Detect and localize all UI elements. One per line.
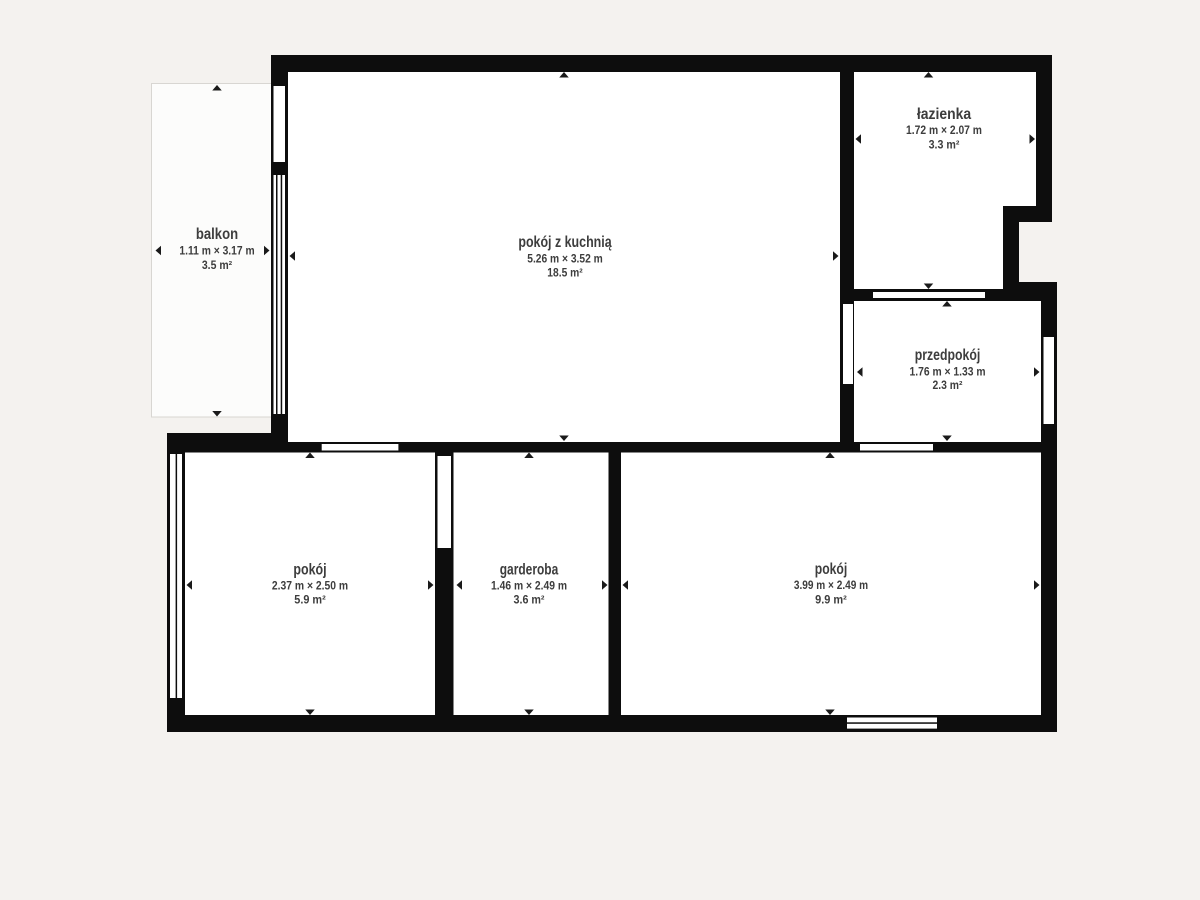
svg-text:18.5 m²: 18.5 m²: [547, 267, 583, 279]
svg-text:2.37 m × 2.50 m: 2.37 m × 2.50 m: [272, 580, 348, 592]
svg-text:9.9 m²: 9.9 m²: [815, 594, 847, 606]
svg-text:1.76 m × 1.33 m: 1.76 m × 1.33 m: [910, 366, 986, 378]
svg-text:5.9 m²: 5.9 m²: [294, 595, 326, 607]
svg-text:garderoba: garderoba: [500, 561, 559, 578]
svg-text:5.26 m × 3.52 m: 5.26 m × 3.52 m: [527, 253, 603, 265]
svg-text:pokój z kuchnią: pokój z kuchnią: [518, 234, 612, 251]
svg-text:3.5 m²: 3.5 m²: [202, 260, 232, 272]
svg-text:pokój: pokój: [293, 561, 326, 578]
svg-text:3.99 m × 2.49 m: 3.99 m × 2.49 m: [794, 580, 868, 592]
svg-text:2.3 m²: 2.3 m²: [933, 380, 963, 392]
svg-text:3.6 m²: 3.6 m²: [514, 595, 545, 607]
svg-text:balkon: balkon: [196, 226, 238, 243]
svg-text:1.46 m × 2.49 m: 1.46 m × 2.49 m: [491, 580, 567, 592]
svg-text:1.72 m × 2.07 m: 1.72 m × 2.07 m: [906, 125, 982, 137]
svg-text:łazienka: łazienka: [917, 106, 972, 123]
svg-text:przedpokój: przedpokój: [915, 347, 981, 364]
svg-text:3.3 m²: 3.3 m²: [929, 139, 960, 151]
svg-text:pokój: pokój: [815, 561, 848, 578]
svg-text:1.11 m × 3.17 m: 1.11 m × 3.17 m: [179, 245, 254, 257]
